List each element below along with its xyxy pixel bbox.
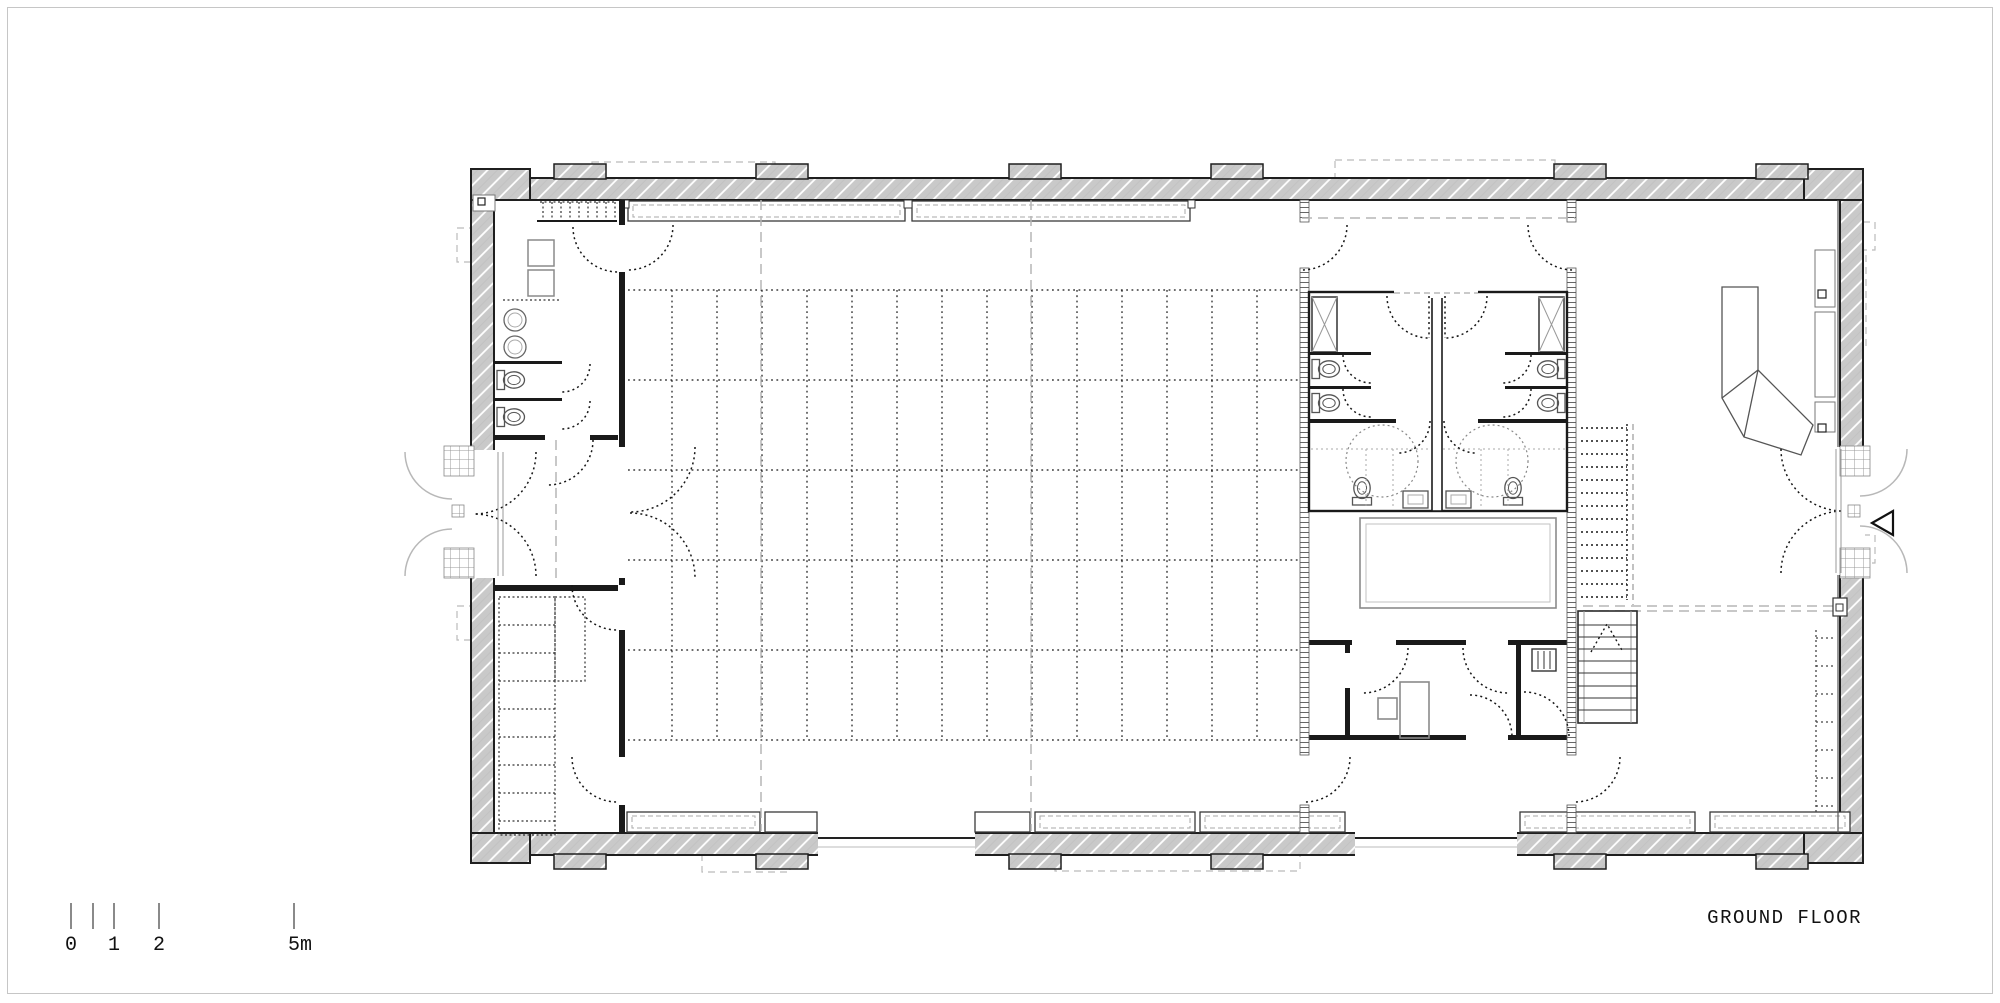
wheelchair-turning-circle	[1346, 425, 1418, 497]
scale-label: 0	[51, 934, 91, 957]
basin	[1403, 491, 1428, 508]
accessible-toilet	[1353, 478, 1372, 506]
exterior-dashed-outlines	[457, 160, 1875, 872]
toilet	[497, 371, 525, 390]
sink	[504, 336, 526, 358]
scale-tick	[92, 903, 94, 929]
appliance	[528, 270, 554, 296]
appliance	[528, 240, 554, 266]
entrance-pier	[444, 548, 474, 578]
scale-label: 5m	[280, 934, 320, 957]
desk	[1378, 698, 1397, 719]
toilet	[497, 408, 525, 427]
scale-bar: 0 1 2 5m	[55, 901, 315, 961]
storage-shelving	[499, 597, 585, 835]
windows-top	[622, 200, 1195, 221]
scale-tick	[70, 903, 72, 929]
stair-flight-down	[1578, 611, 1637, 723]
toilet	[1538, 360, 1566, 379]
entrance-pier	[1840, 446, 1870, 476]
main-hall-grid	[628, 290, 1298, 740]
entrance-pier	[1840, 548, 1870, 578]
accessible-toilet	[1504, 478, 1523, 506]
northwest-room-fixtures	[497, 202, 617, 427]
scale-tick	[113, 903, 115, 929]
floor-plan-sheet: 0 1 2 5m GROUND FLOOR	[0, 0, 2000, 1003]
exterior-walls	[471, 169, 1863, 863]
angled-duct	[1722, 287, 1813, 455]
toilet	[1312, 394, 1340, 413]
desk	[1400, 682, 1429, 738]
coat-rack	[540, 202, 616, 218]
plan-title: GROUND FLOOR	[1707, 907, 1862, 929]
staircase	[1578, 424, 1847, 723]
scale-label: 2	[139, 934, 179, 957]
entrance-pier	[444, 446, 474, 476]
scale-tick	[293, 903, 295, 929]
scale-tick	[158, 903, 160, 929]
servery-table	[1360, 518, 1556, 608]
basin	[1446, 491, 1471, 508]
stair-flight-above-dotted	[1581, 424, 1627, 600]
floor-plan-drawing	[0, 0, 2000, 1003]
windows-bottom	[627, 812, 1850, 832]
toilet	[1312, 360, 1340, 379]
ceiling-joint-dashed-lines	[556, 200, 1833, 831]
scale-label: 1	[94, 934, 134, 957]
office-fixtures	[1378, 649, 1556, 738]
sink	[504, 309, 526, 331]
toilet	[1538, 394, 1566, 413]
east-wall-radiator	[1816, 630, 1833, 812]
